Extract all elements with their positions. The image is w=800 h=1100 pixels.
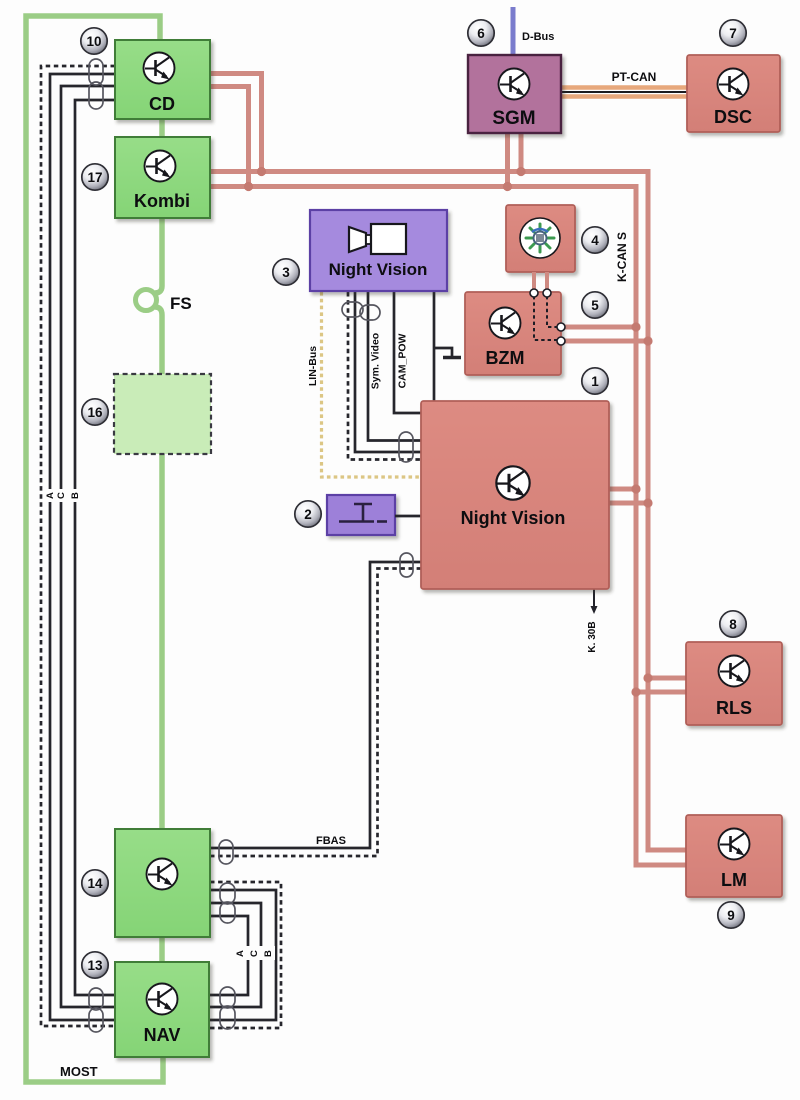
svg-text:SGM: SGM (492, 108, 535, 129)
svg-text:A: A (45, 492, 56, 499)
svg-text:CAM_POW: CAM_POW (397, 333, 409, 388)
svg-text:K-CAN S: K-CAN S (615, 232, 629, 282)
svg-text:9: 9 (727, 908, 735, 923)
svg-text:7: 7 (729, 26, 737, 41)
svg-text:17: 17 (87, 170, 102, 185)
svg-text:B: B (263, 950, 274, 957)
svg-text:10: 10 (86, 34, 101, 49)
svg-text:LM: LM (721, 870, 747, 890)
svg-text:Night Vision: Night Vision (329, 260, 428, 279)
svg-text:NAV: NAV (144, 1025, 181, 1045)
svg-text:5: 5 (591, 298, 599, 313)
svg-text:Kombi: Kombi (134, 191, 190, 211)
svg-text:BZM: BZM (486, 348, 525, 368)
svg-text:FS: FS (170, 294, 192, 313)
svg-text:MOST: MOST (60, 1064, 98, 1079)
svg-text:K. 30B: K. 30B (587, 621, 598, 652)
svg-text:LIN-Bus: LIN-Bus (307, 346, 319, 386)
svg-text:14: 14 (87, 876, 103, 891)
svg-text:1: 1 (591, 374, 599, 389)
svg-text:13: 13 (87, 958, 103, 973)
svg-text:DSC: DSC (714, 107, 752, 127)
svg-text:16: 16 (87, 405, 103, 420)
svg-text:2: 2 (304, 507, 312, 522)
svg-text:CD: CD (149, 94, 175, 114)
svg-text:D-Bus: D-Bus (522, 31, 554, 43)
svg-text:4: 4 (591, 233, 599, 248)
svg-text:A: A (235, 950, 246, 957)
svg-text:FBAS: FBAS (316, 835, 346, 847)
svg-text:PT-CAN: PT-CAN (612, 70, 657, 84)
svg-text:3: 3 (282, 265, 290, 280)
svg-text:RLS: RLS (716, 698, 752, 718)
svg-text:B: B (70, 492, 81, 499)
svg-text:6: 6 (477, 26, 485, 41)
svg-text:Sym. Video: Sym. Video (370, 333, 382, 389)
svg-text:Night Vision: Night Vision (461, 508, 566, 528)
svg-text:8: 8 (729, 617, 737, 632)
svg-text:C: C (249, 950, 260, 957)
svg-text:C: C (56, 492, 67, 499)
